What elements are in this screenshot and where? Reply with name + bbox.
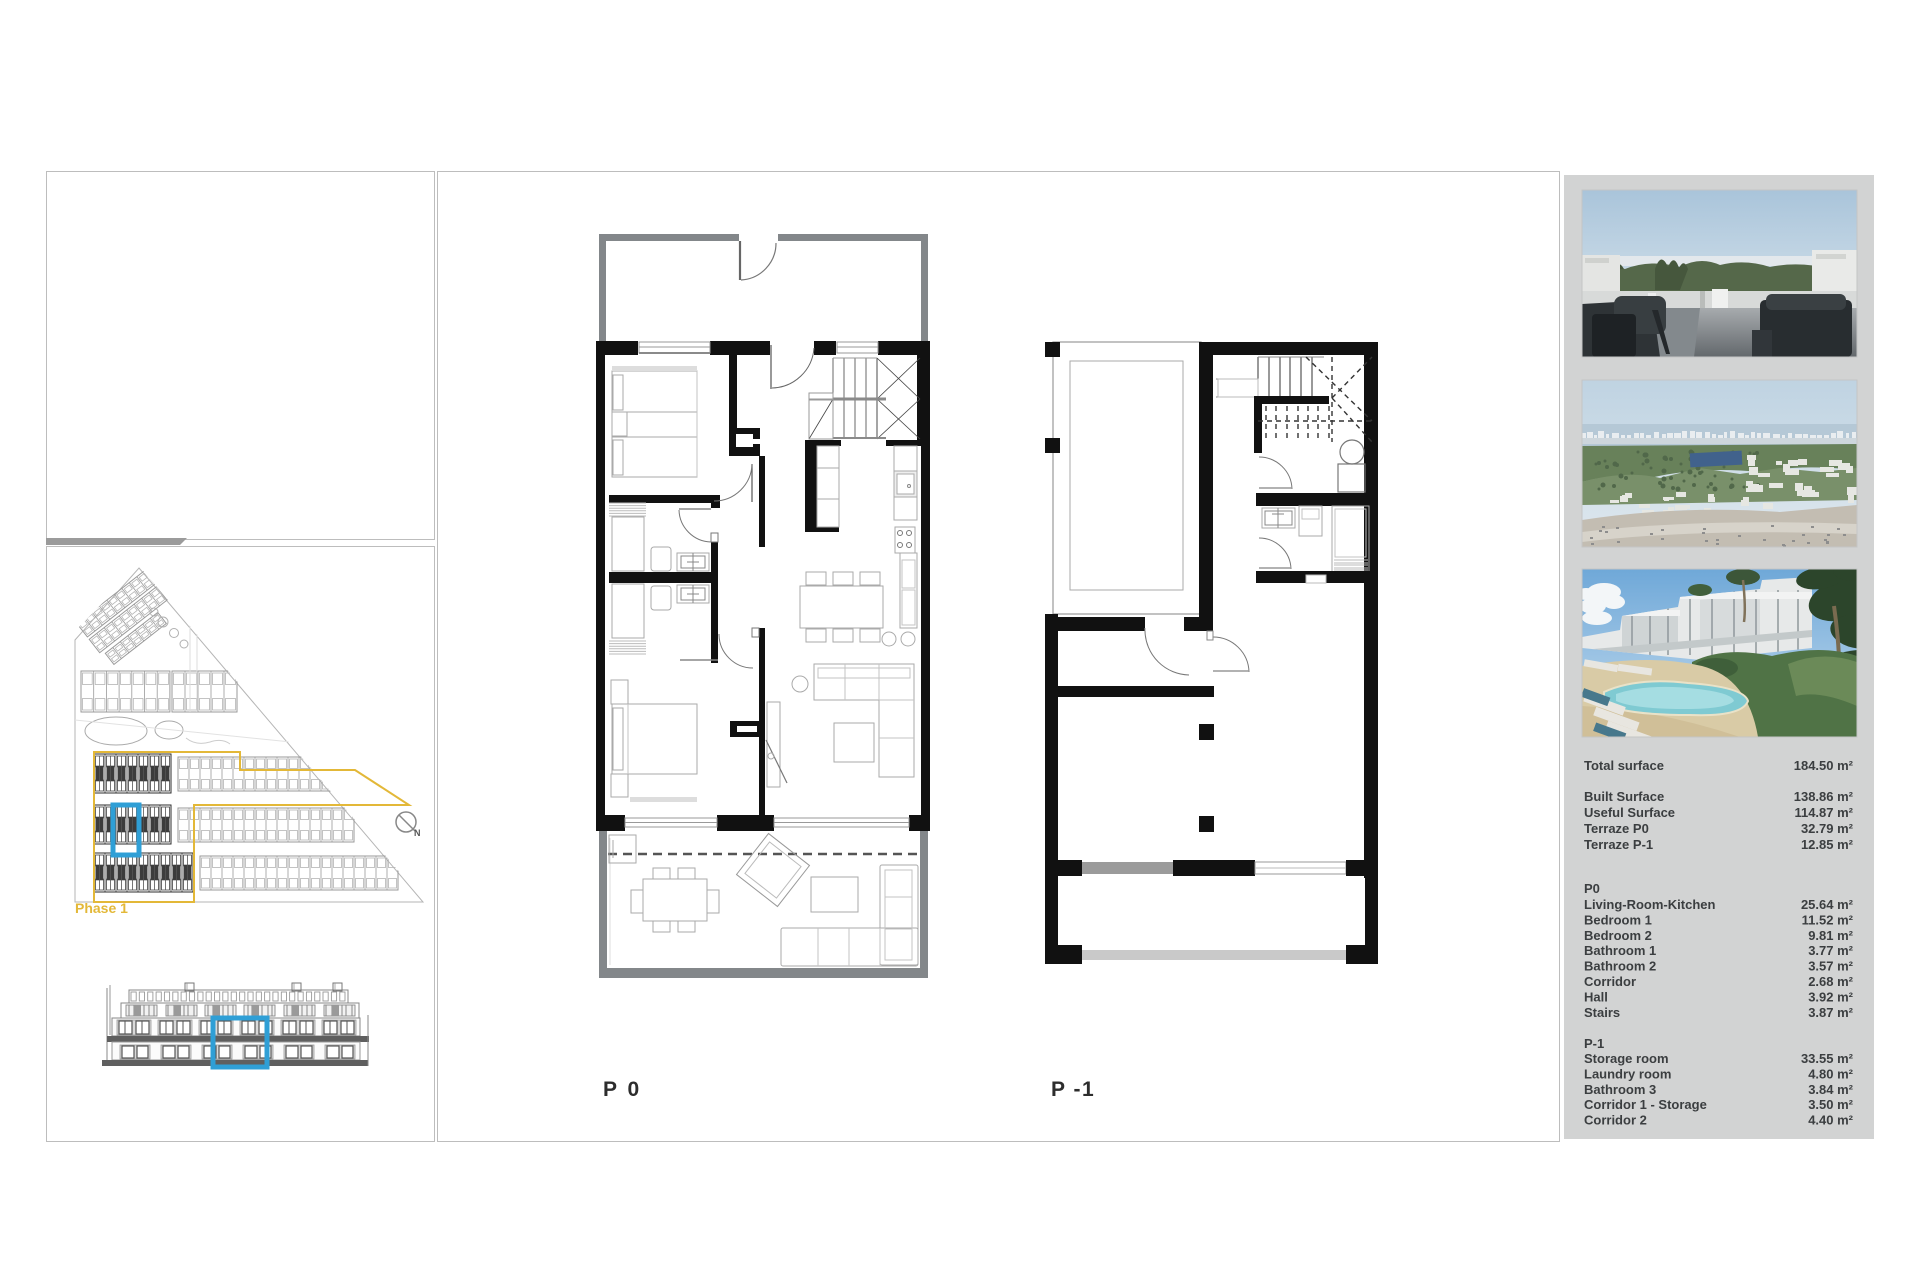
- svg-text:114.87 m²: 114.87 m²: [1794, 805, 1853, 820]
- svg-text:3.77 m²: 3.77 m²: [1808, 943, 1853, 958]
- svg-text:Terraze P-1: Terraze P-1: [1584, 837, 1653, 852]
- svg-text:Storage room: Storage room: [1584, 1051, 1669, 1066]
- svg-text:4.80 m²: 4.80 m²: [1808, 1066, 1853, 1081]
- svg-text:Bathroom 3: Bathroom 3: [1584, 1082, 1656, 1097]
- svg-text:Phase 1: Phase 1: [75, 900, 128, 916]
- svg-text:Living-Room-Kitchen: Living-Room-Kitchen: [1584, 897, 1715, 912]
- svg-text:3.92 m²: 3.92 m²: [1808, 989, 1853, 1004]
- svg-text:Terraze P0: Terraze P0: [1584, 821, 1649, 836]
- svg-text:Bedroom 2: Bedroom 2: [1584, 928, 1652, 943]
- svg-text:184.50 m²: 184.50 m²: [1794, 758, 1854, 773]
- svg-text:25.64 m²: 25.64 m²: [1801, 897, 1854, 912]
- svg-text:Bedroom 1: Bedroom 1: [1584, 912, 1652, 927]
- svg-text:3.50 m²: 3.50 m²: [1808, 1097, 1853, 1112]
- svg-text:P0: P0: [1584, 881, 1600, 896]
- svg-text:4.40 m²: 4.40 m²: [1808, 1113, 1853, 1128]
- svg-text:11.52 m²: 11.52 m²: [1802, 912, 1854, 927]
- svg-text:Corridor 2: Corridor 2: [1584, 1113, 1647, 1128]
- svg-text:P -1: P -1: [1051, 1078, 1095, 1101]
- svg-text:P-1: P-1: [1584, 1036, 1604, 1051]
- svg-text:N: N: [414, 828, 421, 838]
- svg-text:9.81 m²: 9.81 m²: [1808, 928, 1853, 943]
- svg-text:Stairs: Stairs: [1584, 1005, 1620, 1020]
- svg-text:Built Surface: Built Surface: [1584, 789, 1664, 804]
- svg-text:138.86 m²: 138.86 m²: [1794, 789, 1854, 804]
- svg-text:Bathroom 1: Bathroom 1: [1584, 943, 1656, 958]
- svg-text:33.55 m²: 33.55 m²: [1801, 1051, 1854, 1066]
- svg-text:12.85 m²: 12.85 m²: [1801, 837, 1854, 852]
- svg-text:3.87 m²: 3.87 m²: [1808, 1005, 1853, 1020]
- svg-text:Corridor 1 - Storage: Corridor 1 - Storage: [1584, 1097, 1707, 1112]
- svg-text:Bathroom 2: Bathroom 2: [1584, 959, 1656, 974]
- svg-text:Useful Surface: Useful Surface: [1584, 805, 1675, 820]
- svg-text:P 0: P 0: [603, 1078, 642, 1101]
- svg-text:32.79 m²: 32.79 m²: [1801, 821, 1854, 836]
- svg-text:3.84 m²: 3.84 m²: [1808, 1082, 1853, 1097]
- svg-text:Total surface: Total surface: [1584, 758, 1664, 773]
- svg-text:Corridor: Corridor: [1584, 974, 1636, 989]
- svg-text:2.68 m²: 2.68 m²: [1808, 974, 1853, 989]
- svg-text:3.57 m²: 3.57 m²: [1808, 959, 1853, 974]
- svg-text:Laundry room: Laundry room: [1584, 1066, 1671, 1081]
- svg-text:Hall: Hall: [1584, 989, 1608, 1004]
